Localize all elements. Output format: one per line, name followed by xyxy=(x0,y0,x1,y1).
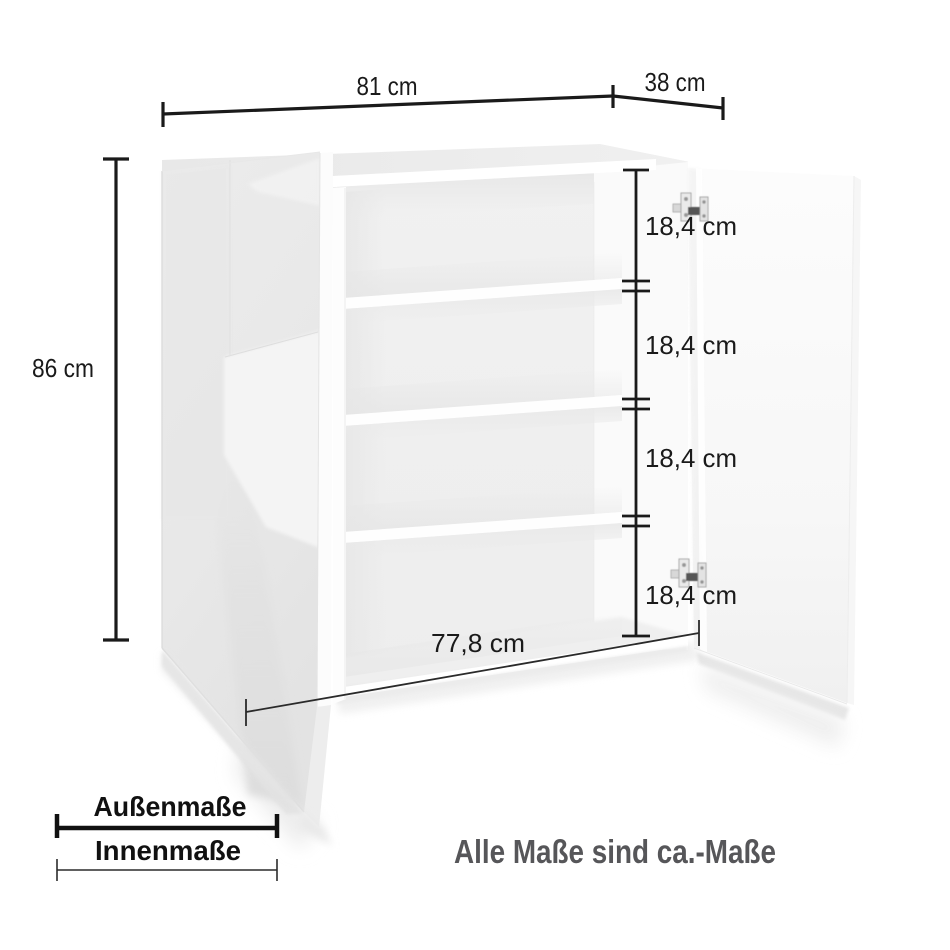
svg-text:18,4 cm: 18,4 cm xyxy=(645,580,737,610)
svg-text:86 cm: 86 cm xyxy=(32,353,94,383)
svg-text:77,8 cm: 77,8 cm xyxy=(431,628,525,658)
svg-text:Alle Maße sind ca.-Maße: Alle Maße sind ca.-Maße xyxy=(454,833,776,870)
svg-text:18,4 cm: 18,4 cm xyxy=(645,211,737,241)
svg-text:38 cm: 38 cm xyxy=(645,67,706,97)
svg-text:Außenmaße: Außenmaße xyxy=(94,791,247,822)
svg-text:18,4 cm: 18,4 cm xyxy=(645,443,737,473)
svg-text:Innenmaße: Innenmaße xyxy=(95,835,241,866)
svg-text:18,4 cm: 18,4 cm xyxy=(645,330,737,360)
svg-text:81 cm: 81 cm xyxy=(357,71,418,101)
